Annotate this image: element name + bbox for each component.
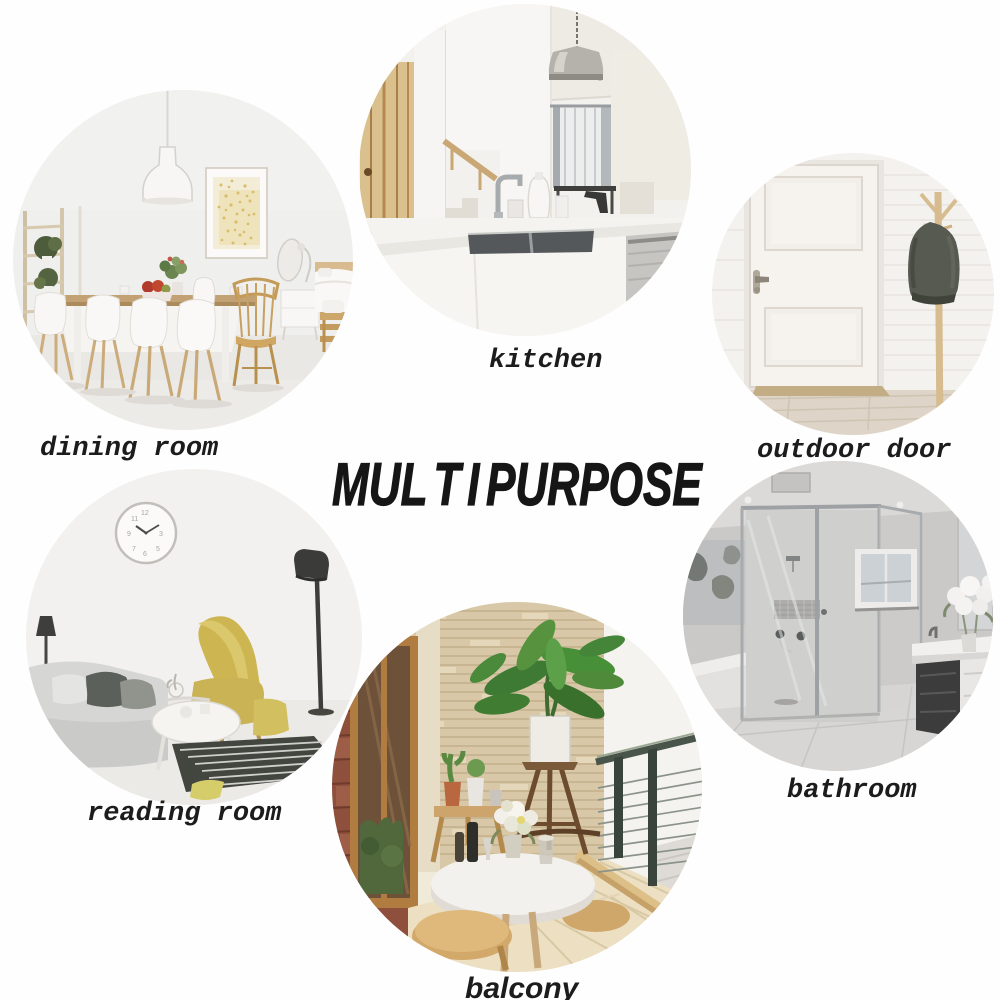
svg-text:MULTIPURPOSE: MULTIPURPOSE <box>332 451 703 518</box>
svg-text:7: 7 <box>132 546 136 553</box>
svg-text:bathroom: bathroom <box>787 776 917 806</box>
svg-text:11: 11 <box>131 516 138 523</box>
svg-text:9: 9 <box>127 531 131 538</box>
svg-text:12: 12 <box>141 510 149 517</box>
svg-text:balcony: balcony <box>465 972 580 1000</box>
svg-text:reading room: reading room <box>87 799 281 829</box>
svg-text:outdoor door: outdoor door <box>757 436 951 466</box>
svg-text:6: 6 <box>143 551 147 558</box>
svg-text:3: 3 <box>159 531 163 538</box>
svg-text:dining room: dining room <box>40 434 218 464</box>
svg-text:5: 5 <box>156 546 160 553</box>
svg-text:kitchen: kitchen <box>489 346 602 376</box>
